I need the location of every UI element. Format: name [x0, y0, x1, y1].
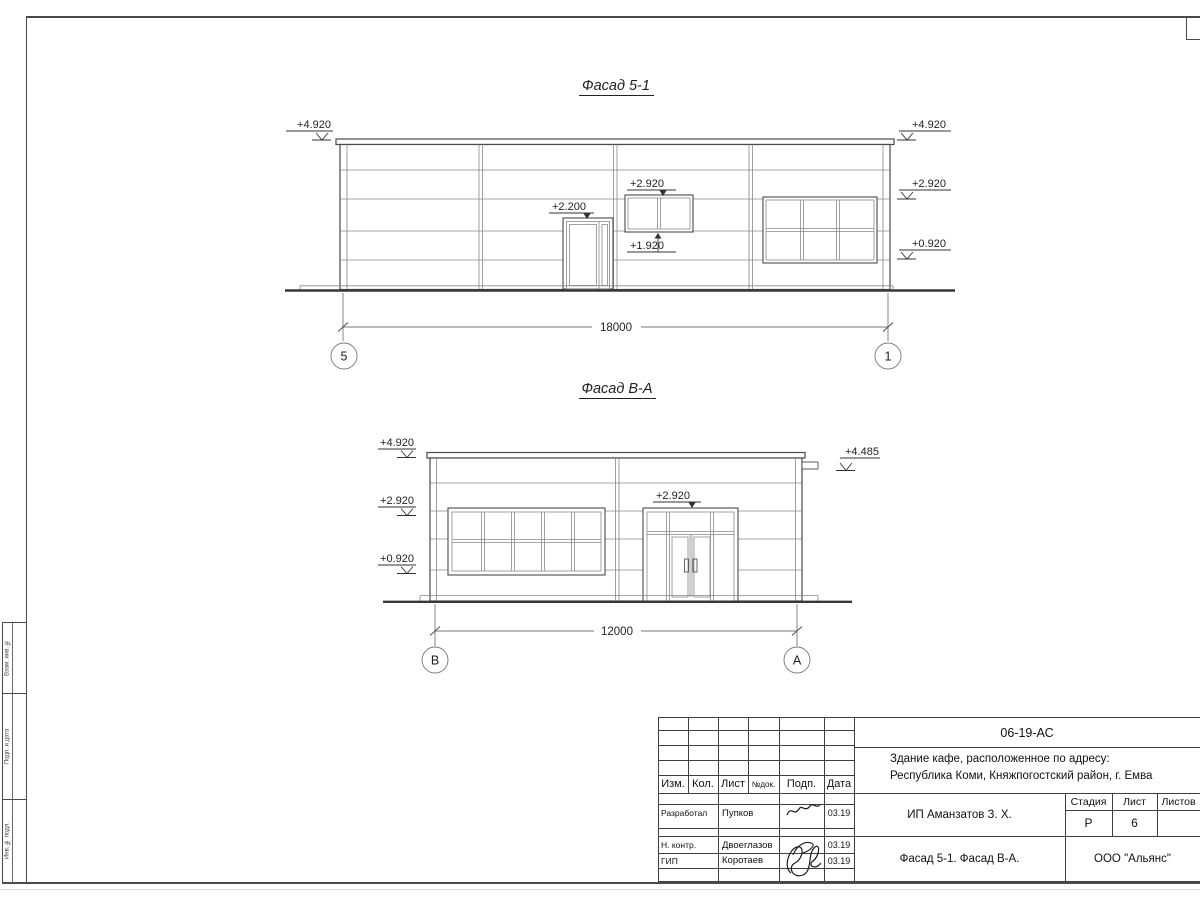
svg-text:+2.920: +2.920 [912, 178, 946, 190]
svg-text:+1.920: +1.920 [630, 240, 664, 252]
facade-5-1-drawing: Фасад 5-1 [270, 60, 970, 380]
tb-header-ndok: №док. [748, 775, 779, 793]
svg-text:+4.920: +4.920 [297, 119, 331, 131]
tb-header-izm: Изм. [658, 775, 688, 793]
tb-header-podp: Подп. [779, 775, 824, 793]
drawing-page: { "frame": { "left_strip": [ {"label": "… [0, 0, 1200, 900]
facade-5-1-axes: 5 1 [331, 343, 901, 369]
svg-text:+0.920: +0.920 [380, 553, 414, 565]
title-block: Изм. Кол. Лист №док. Подп. Дата Разработ… [658, 717, 1200, 882]
axis-label-a: А [793, 654, 802, 668]
facade-v-a-axes: В А [422, 647, 810, 673]
svg-text:+0.920: +0.920 [912, 238, 946, 250]
signature-gip [787, 846, 821, 876]
facade-5-1-door [563, 218, 613, 289]
svg-text:+2.920: +2.920 [656, 490, 690, 502]
facade-5-1-title: Фасад 5-1 [582, 78, 650, 94]
tb-doc-code: 06-19-АС [854, 718, 1200, 747]
axis-label-v: В [431, 654, 439, 668]
facade-5-1-dim-text: 18000 [600, 322, 632, 334]
tb-row-date-0: 03.19 [824, 804, 854, 822]
tb-row-date-1: 03.19 [824, 837, 854, 853]
tb-row-date-2: 03.19 [824, 853, 854, 868]
axis-label-5: 5 [341, 350, 348, 364]
facade-5-1-small-window [625, 195, 693, 232]
facade-v-a-dimension [430, 604, 802, 646]
tb-row-role-0: Разработал [661, 804, 718, 822]
tb-object-line2: Республика Коми, Княжпогостский район, г… [890, 768, 1196, 785]
facade-v-a-entrance [643, 508, 738, 601]
axis-label-1: 1 [885, 350, 892, 364]
tb-row-name-1: Двоеглазов [722, 837, 779, 853]
facade-v-a-dim-text: 12000 [601, 626, 633, 638]
tb-client: ИП Аманзатов З. Х. [854, 794, 1065, 836]
signature-nkontr [793, 843, 813, 856]
strip-label-vzam: Взам. инв. № [3, 623, 12, 693]
tb-list-value: 6 [1112, 810, 1157, 836]
svg-text:+2.200: +2.200 [552, 201, 586, 213]
facade-5-1-large-window [763, 197, 877, 263]
tb-object-line1: Здание кафе, расположенное по адресу: [890, 751, 1196, 768]
tb-row-role-1: Н. контр. [661, 837, 718, 853]
paper-edge [0, 889, 1200, 890]
tb-listov-value [1157, 810, 1200, 836]
facade-v-a-title: Фасад В-А [581, 381, 652, 397]
tb-header-list: Лист [718, 775, 748, 793]
tb-sheet-title: Фасад 5-1. Фасад В-А. [854, 837, 1065, 881]
strip-label-podp: Подп. и дата [3, 693, 12, 799]
strip-inner-divider [12, 623, 13, 883]
tb-listov-label: Листов [1157, 793, 1200, 810]
frame-top-line [26, 16, 1200, 18]
svg-text:+4.920: +4.920 [380, 437, 414, 449]
svg-text:+2.920: +2.920 [630, 178, 664, 190]
svg-text:+4.485: +4.485 [845, 446, 879, 458]
signature-razrabotal [787, 805, 820, 815]
svg-text:+4.920: +4.920 [912, 119, 946, 131]
corner-doc-number-box [1186, 17, 1200, 40]
tb-stage-label: Стадия [1065, 793, 1112, 810]
tb-stage-value: Р [1065, 810, 1112, 836]
facade-v-a-drawing: Фасад В-А [360, 375, 880, 695]
tb-row-name-0: Пупков [722, 804, 779, 822]
svg-text:+2.920: +2.920 [380, 495, 414, 507]
tb-header-data: Дата [824, 775, 854, 793]
tb-company: ООО "Альянс" [1065, 837, 1200, 881]
tb-list-label: Лист [1112, 793, 1157, 810]
facade-v-a-window [448, 508, 605, 575]
tb-object-name: Здание кафе, расположенное по адресу: Ре… [890, 751, 1196, 791]
tb-row-name-2: Коротаев [722, 853, 779, 868]
strip-label-inv: Инв. № подл. [3, 799, 12, 883]
signatures [779, 797, 824, 882]
frame-left-strip: Взам. инв. № Подп. и дата Инв. № подл. [2, 622, 27, 883]
tb-row-role-2: ГИП [661, 853, 718, 868]
tb-header-kol: Кол. [688, 775, 718, 793]
